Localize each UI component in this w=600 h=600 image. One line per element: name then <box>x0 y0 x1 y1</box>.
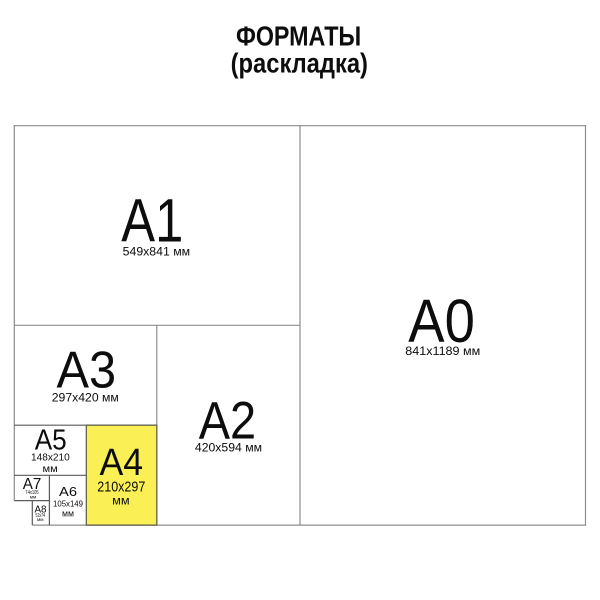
svg-text:105x149: 105x149 <box>53 499 83 508</box>
svg-text:420x594 мм: 420x594 мм <box>195 440 262 454</box>
svg-text:148x210: 148x210 <box>31 452 70 464</box>
svg-text:мм: мм <box>112 494 130 508</box>
svg-text:A4: A4 <box>100 442 144 484</box>
svg-text:A6: A6 <box>59 484 77 499</box>
svg-text:549x841 мм: 549x841 мм <box>123 245 191 259</box>
svg-text:(раскладка): (раскладка) <box>231 47 368 78</box>
svg-text:мм: мм <box>62 509 74 520</box>
svg-text:297x420 мм: 297x420 мм <box>52 390 119 404</box>
svg-text:841x1189 мм: 841x1189 мм <box>405 344 480 358</box>
svg-text:мм: мм <box>37 518 44 523</box>
svg-text:мм: мм <box>43 464 58 475</box>
svg-text:мм: мм <box>30 496 37 501</box>
